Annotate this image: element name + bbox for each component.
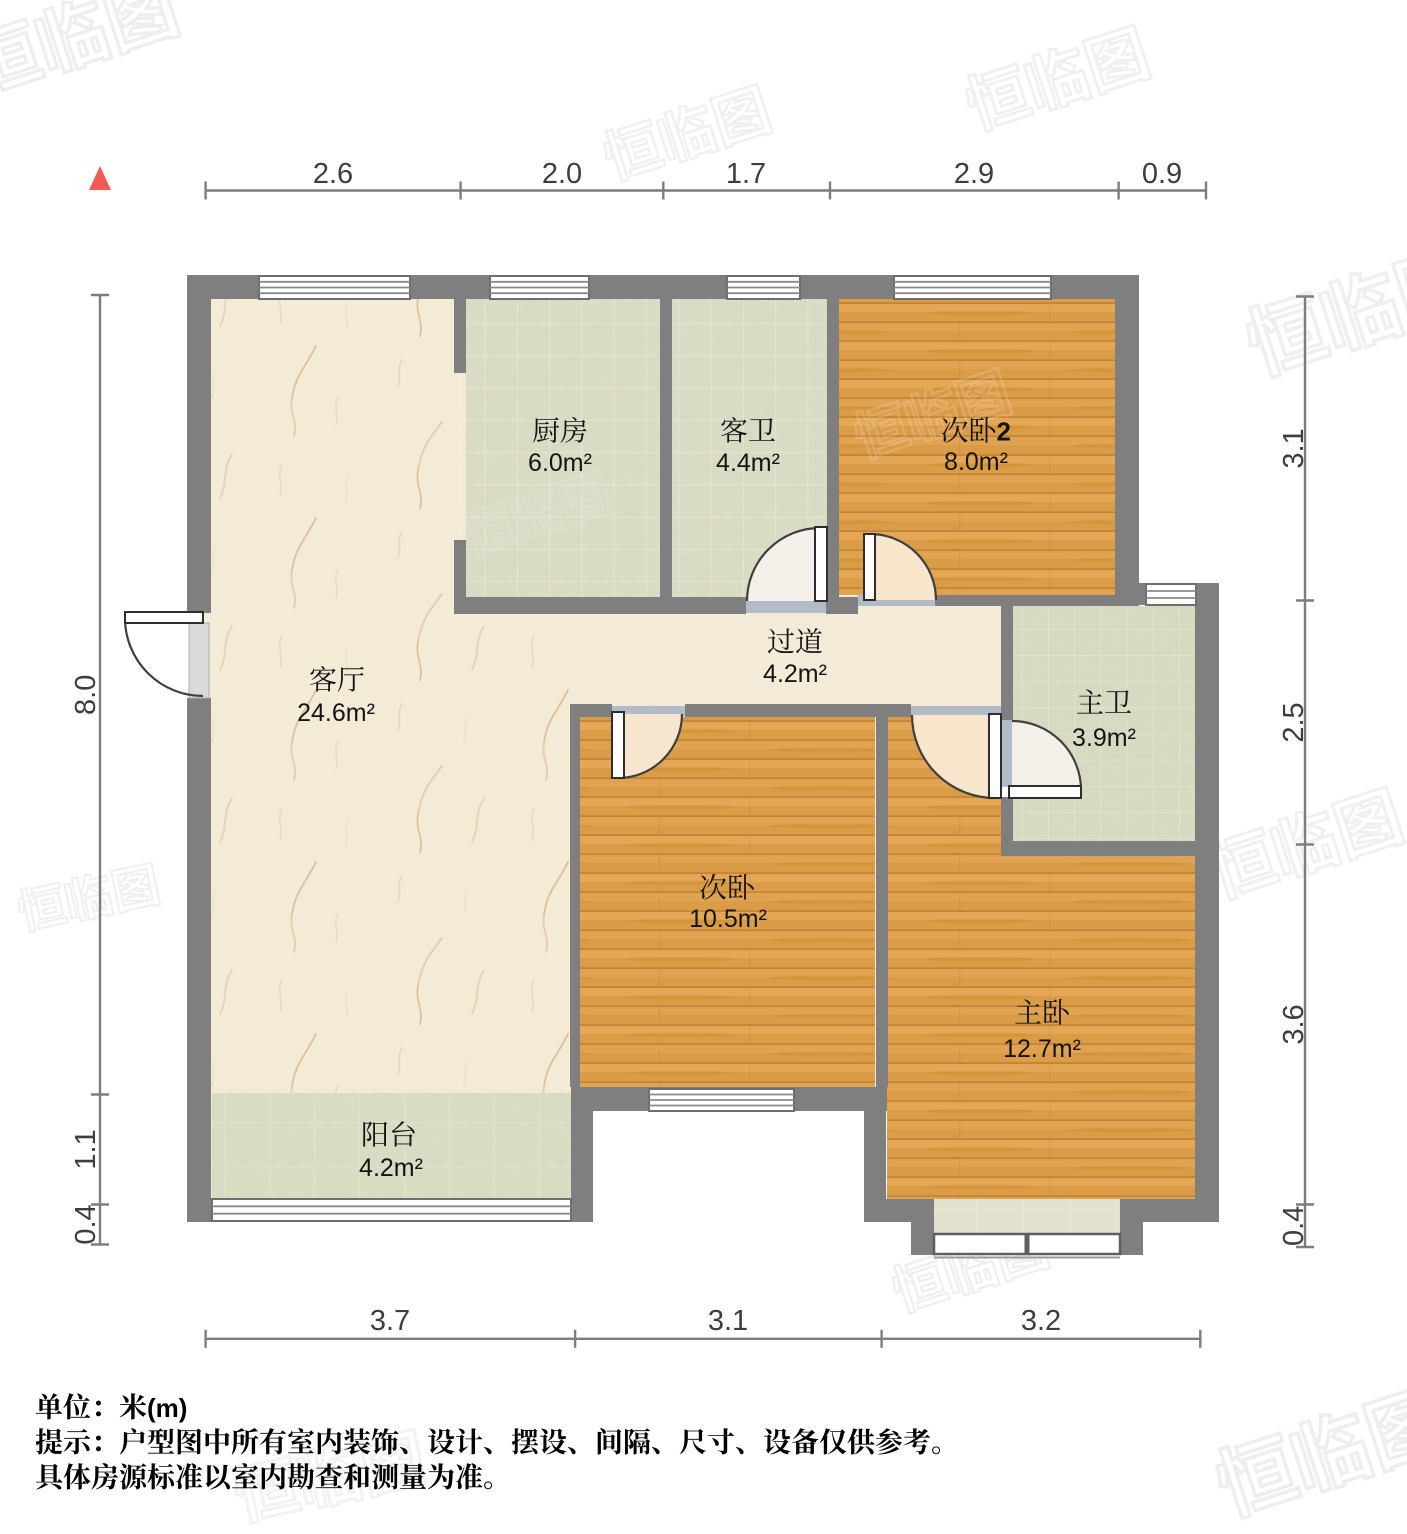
svg-text:3.1: 3.1 [708, 1305, 748, 1337]
svg-text:2: 2 [997, 417, 1011, 447]
svg-text:3.2: 3.2 [1021, 1305, 1061, 1337]
svg-text:2.0: 2.0 [542, 158, 582, 190]
svg-text:1.1: 1.1 [70, 1129, 102, 1169]
svg-text:3.9m²: 3.9m² [1072, 724, 1136, 752]
svg-text:12.7m²: 12.7m² [1003, 1035, 1081, 1063]
svg-text:3.1: 3.1 [1278, 428, 1310, 468]
svg-text:0.9: 0.9 [1142, 158, 1182, 190]
svg-text:24.6m²: 24.6m² [297, 699, 375, 727]
svg-text:6.0m²: 6.0m² [528, 449, 592, 477]
svg-text:2.6: 2.6 [313, 158, 353, 190]
svg-text:4.2m²: 4.2m² [763, 660, 827, 688]
svg-text:10.5m²: 10.5m² [689, 905, 767, 933]
svg-text:(m): (m) [147, 1393, 187, 1423]
svg-text:3.6: 3.6 [1278, 1004, 1310, 1044]
svg-text:1.7: 1.7 [726, 158, 766, 190]
svg-text:0.4: 0.4 [70, 1204, 102, 1244]
svg-text:8.0: 8.0 [70, 675, 102, 715]
svg-text:8.0m²: 8.0m² [944, 448, 1008, 476]
svg-text:3.7: 3.7 [370, 1305, 410, 1337]
svg-text:0.4: 0.4 [1278, 1206, 1310, 1246]
svg-text:4.4m²: 4.4m² [716, 449, 780, 477]
svg-text:2.5: 2.5 [1278, 702, 1310, 742]
svg-text:4.2m²: 4.2m² [359, 1154, 423, 1182]
svg-text:2.9: 2.9 [954, 158, 994, 190]
